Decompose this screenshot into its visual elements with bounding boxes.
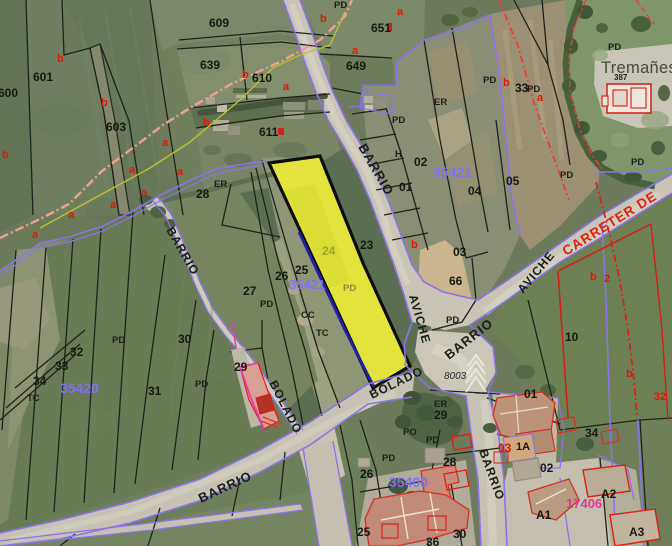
svg-text:a: a <box>110 199 117 211</box>
svg-text:28: 28 <box>443 455 457 469</box>
svg-text:24: 24 <box>322 244 336 258</box>
svg-text:ER: ER <box>434 399 447 410</box>
svg-text:35420: 35420 <box>60 380 99 396</box>
svg-text:10: 10 <box>565 330 579 344</box>
svg-text:32: 32 <box>654 391 666 403</box>
svg-text:PD: PD <box>382 453 395 464</box>
svg-text:b: b <box>590 271 597 283</box>
svg-text:a: a <box>129 164 136 176</box>
svg-text:26: 26 <box>360 467 374 481</box>
svg-text:ER: ER <box>214 179 227 190</box>
svg-text:1A: 1A <box>516 441 530 453</box>
svg-text:A3: A3 <box>629 525 645 539</box>
svg-text:TC: TC <box>27 393 40 404</box>
svg-text:PD: PD <box>560 170 573 181</box>
svg-text:Tremañes: Tremañes <box>601 59 672 77</box>
svg-text:PD: PD <box>334 0 347 11</box>
svg-text:H: H <box>395 149 402 160</box>
svg-text:23: 23 <box>360 238 374 252</box>
svg-text:b: b <box>57 53 64 65</box>
svg-text:A1: A1 <box>536 508 552 522</box>
svg-text:02: 02 <box>540 461 554 475</box>
svg-text:33: 33 <box>55 359 69 373</box>
svg-text:35421: 35421 <box>289 277 325 292</box>
svg-text:28: 28 <box>196 187 210 201</box>
svg-text:17406: 17406 <box>566 496 602 511</box>
svg-text:25: 25 <box>295 263 309 277</box>
svg-text:25: 25 <box>357 525 371 539</box>
svg-text:PD: PD <box>608 42 621 53</box>
svg-text:03: 03 <box>498 441 512 455</box>
svg-text:PD: PD <box>631 157 644 168</box>
svg-text:34: 34 <box>585 426 599 440</box>
svg-text:31: 31 <box>148 384 162 398</box>
svg-text:TC: TC <box>316 328 329 339</box>
svg-text:a: a <box>177 166 184 178</box>
svg-text:CC: CC <box>301 310 315 321</box>
svg-text:601: 601 <box>33 70 53 84</box>
svg-text:b: b <box>320 13 327 25</box>
svg-text:30: 30 <box>178 332 192 346</box>
svg-text:a: a <box>32 229 39 241</box>
svg-text:36: 36 <box>426 535 440 546</box>
svg-text:PD: PD <box>260 299 273 310</box>
svg-text:649: 649 <box>346 59 366 73</box>
svg-text:03: 03 <box>453 245 467 259</box>
svg-text:610: 610 <box>252 71 272 85</box>
svg-text:b: b <box>2 149 9 161</box>
svg-text:35400: 35400 <box>389 474 428 490</box>
svg-text:603: 603 <box>106 120 126 134</box>
svg-text:a: a <box>537 92 544 104</box>
svg-text:27: 27 <box>243 284 257 298</box>
svg-text:02: 02 <box>414 155 428 169</box>
svg-text:29: 29 <box>234 360 248 374</box>
svg-text:8003: 8003 <box>444 371 467 382</box>
svg-text:651: 651 <box>371 21 391 35</box>
svg-text:PD: PD <box>446 315 459 326</box>
svg-text:b: b <box>101 97 108 109</box>
svg-text:a: a <box>397 6 404 18</box>
svg-text:2: 2 <box>604 273 610 285</box>
svg-text:b: b <box>203 117 210 129</box>
svg-text:34: 34 <box>33 374 47 388</box>
svg-text:a: a <box>141 187 148 199</box>
svg-text:29: 29 <box>434 408 448 422</box>
svg-text:a: a <box>68 209 75 221</box>
svg-text:b: b <box>626 368 633 380</box>
svg-text:b: b <box>242 69 249 81</box>
svg-text:PO: PO <box>403 427 417 438</box>
svg-text:600: 600 <box>0 86 18 100</box>
svg-text:609: 609 <box>209 16 229 30</box>
svg-text:PD: PD <box>426 435 439 446</box>
svg-text:32: 32 <box>70 345 84 359</box>
svg-text:01: 01 <box>399 180 413 194</box>
svg-text:04: 04 <box>468 184 482 198</box>
svg-text:PD: PD <box>112 335 125 346</box>
svg-text:611: 611 <box>259 125 279 139</box>
svg-text:a: a <box>352 45 359 57</box>
svg-text:05: 05 <box>506 174 520 188</box>
svg-text:PD: PD <box>392 115 405 126</box>
svg-text:b: b <box>503 77 510 89</box>
svg-text:35421: 35421 <box>433 164 472 180</box>
svg-text:b: b <box>411 239 418 251</box>
svg-text:PD: PD <box>483 75 496 86</box>
svg-text:PD: PD <box>343 283 356 294</box>
svg-text:30: 30 <box>453 527 467 541</box>
svg-text:a: a <box>283 81 290 93</box>
svg-text:66: 66 <box>449 274 463 288</box>
svg-text:26: 26 <box>275 269 289 283</box>
svg-text:639: 639 <box>200 58 220 72</box>
svg-text:a: a <box>162 137 169 149</box>
svg-text:ER: ER <box>434 97 447 108</box>
svg-text:01: 01 <box>524 387 538 401</box>
svg-text:PD: PD <box>195 379 208 390</box>
svg-text:A2: A2 <box>601 487 617 501</box>
